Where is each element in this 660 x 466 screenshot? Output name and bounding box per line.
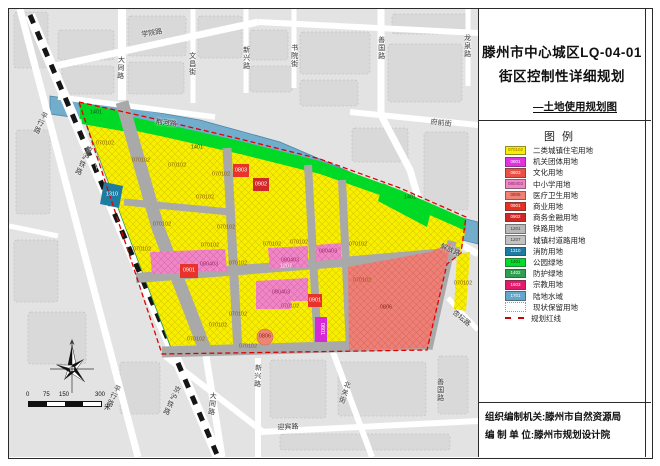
panel-inner-line	[645, 9, 646, 457]
outer-frame	[8, 8, 653, 459]
credits-divider	[479, 402, 651, 403]
title-divider	[479, 120, 651, 121]
planning-map-page: 京沪铁路 京沪铁路 平行路 平行路 学院路 大同路 大同路 文昌街 新兴路	[0, 0, 660, 466]
panel-divider	[478, 9, 479, 457]
